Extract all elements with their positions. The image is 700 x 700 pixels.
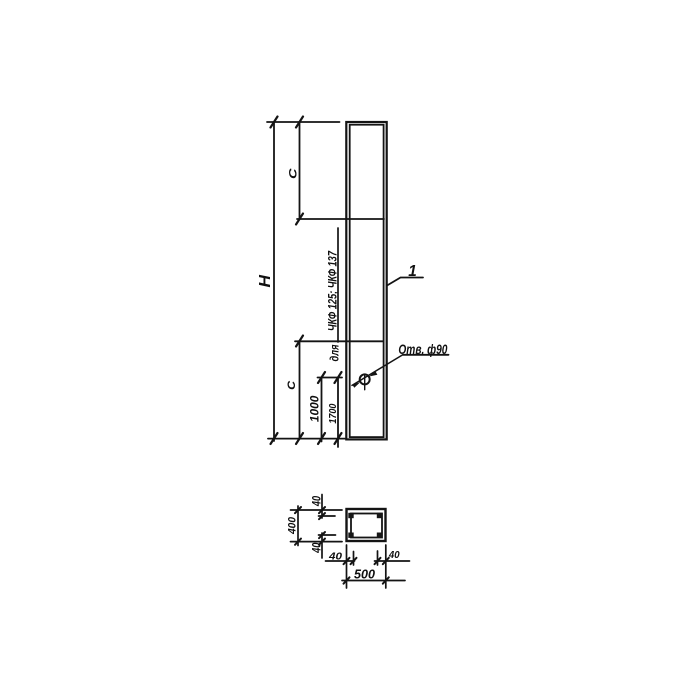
svg-text:40: 40	[310, 496, 324, 507]
svg-text:1: 1	[408, 263, 417, 280]
svg-text:40: 40	[388, 549, 400, 561]
svg-text:Отв. ф90: Отв. ф90	[398, 341, 447, 357]
svg-text:40: 40	[310, 542, 324, 553]
svg-text:500: 500	[354, 566, 376, 581]
svg-text:C: C	[288, 167, 300, 179]
svg-text:1000: 1000	[308, 395, 322, 422]
svg-text:C: C	[286, 380, 298, 390]
svg-text:H: H	[257, 275, 274, 288]
svg-text:1700: 1700	[328, 403, 339, 423]
svg-text:40: 40	[328, 550, 342, 562]
svg-text:ЧКФ 125; ЧКФ 137: ЧКФ 125; ЧКФ 137	[326, 250, 340, 331]
svg-text:для: для	[328, 345, 342, 362]
svg-text:400: 400	[287, 516, 299, 535]
